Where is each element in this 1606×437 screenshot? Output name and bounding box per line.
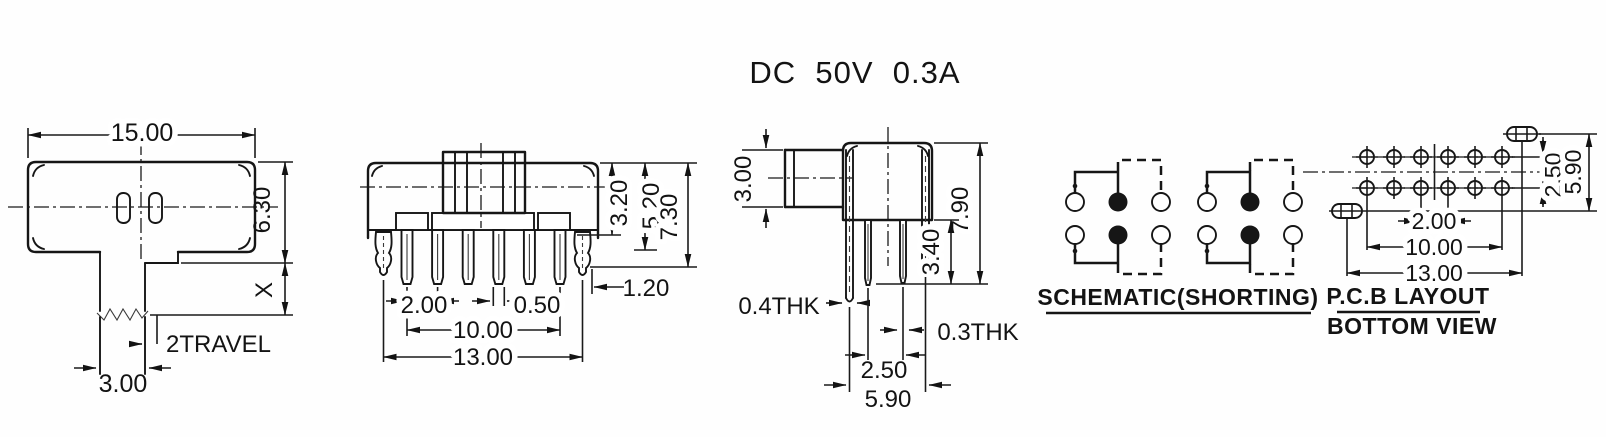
side-view: 3.00 7.90 3.40 0.4THK 0.3THK 2.50 [730,127,1019,413]
dim-h1: 3.20 [606,180,633,227]
engineering-drawing-sheet: DC 50V 0.3A [0,0,1606,437]
dim-knob-height: 3.00 [730,156,757,203]
dim-pcb-slot-row-pitch: 5.90 [1560,150,1586,195]
label-leg-thickness: 0.4THK [738,293,819,320]
dim-pin-pitch: 2.00 [401,292,448,319]
pcb-caption-line1: P.C.B LAYOUT [1326,283,1489,309]
dim-top-width: 15.00 [111,119,174,147]
side-view-outline [768,127,932,302]
schematic-view: SCHEMATIC(SHORTING) [1037,160,1318,313]
front-view-dimensions: 2.00 0.50 10.00 13.00 3.20 5.20 7.30 [384,163,698,371]
side-view-dimensions: 3.00 7.90 3.40 0.4THK 0.3THK 2.50 [730,129,1019,413]
label-travel: 2TRAVEL [166,331,271,358]
drawing-canvas: DC 50V 0.3A [0,0,1606,437]
dim-knob-width: 3.00 [99,370,148,398]
dim-leg-offset: 1.20 [623,275,670,302]
dim-pin-length: 3.40 [918,229,945,276]
dim-row-pitch: 2.50 [861,357,908,384]
dim-top-x: X [251,282,278,298]
dim-pin-width: 0.50 [514,292,561,319]
schematic-pole-1 [1066,160,1170,274]
label-pin-thickness: 0.3THK [937,319,1018,346]
schematic-caption: SCHEMATIC(SHORTING) [1037,284,1318,310]
front-view: 2.00 0.50 10.00 13.00 3.20 5.20 7.30 [360,143,697,371]
dim-leg-pitch: 5.90 [865,386,912,413]
dim-pcb-pad-span: 10.00 [1405,234,1463,260]
pcb-layout-view: 2.00 10.00 13.00 2.50 5.90 P.C.B LAYOUT … [1303,127,1597,339]
front-view-outline [360,143,606,284]
top-view: 15.00 6.30 X 2TRAVEL 3.00 [8,119,293,398]
pcb-caption-line2: BOTTOM VIEW [1327,313,1497,339]
front-view-pins [402,230,566,284]
dim-h3: 7.30 [656,194,683,241]
dim-pcb-pad-pitch: 2.00 [1412,208,1457,234]
dim-pin-span: 10.00 [453,317,513,344]
dim-top-height: 6.30 [249,187,276,234]
drawing-title: DC 50V 0.3A [749,55,960,90]
dim-leg-span: 13.00 [453,344,513,371]
schematic-pole-2 [1198,160,1302,274]
